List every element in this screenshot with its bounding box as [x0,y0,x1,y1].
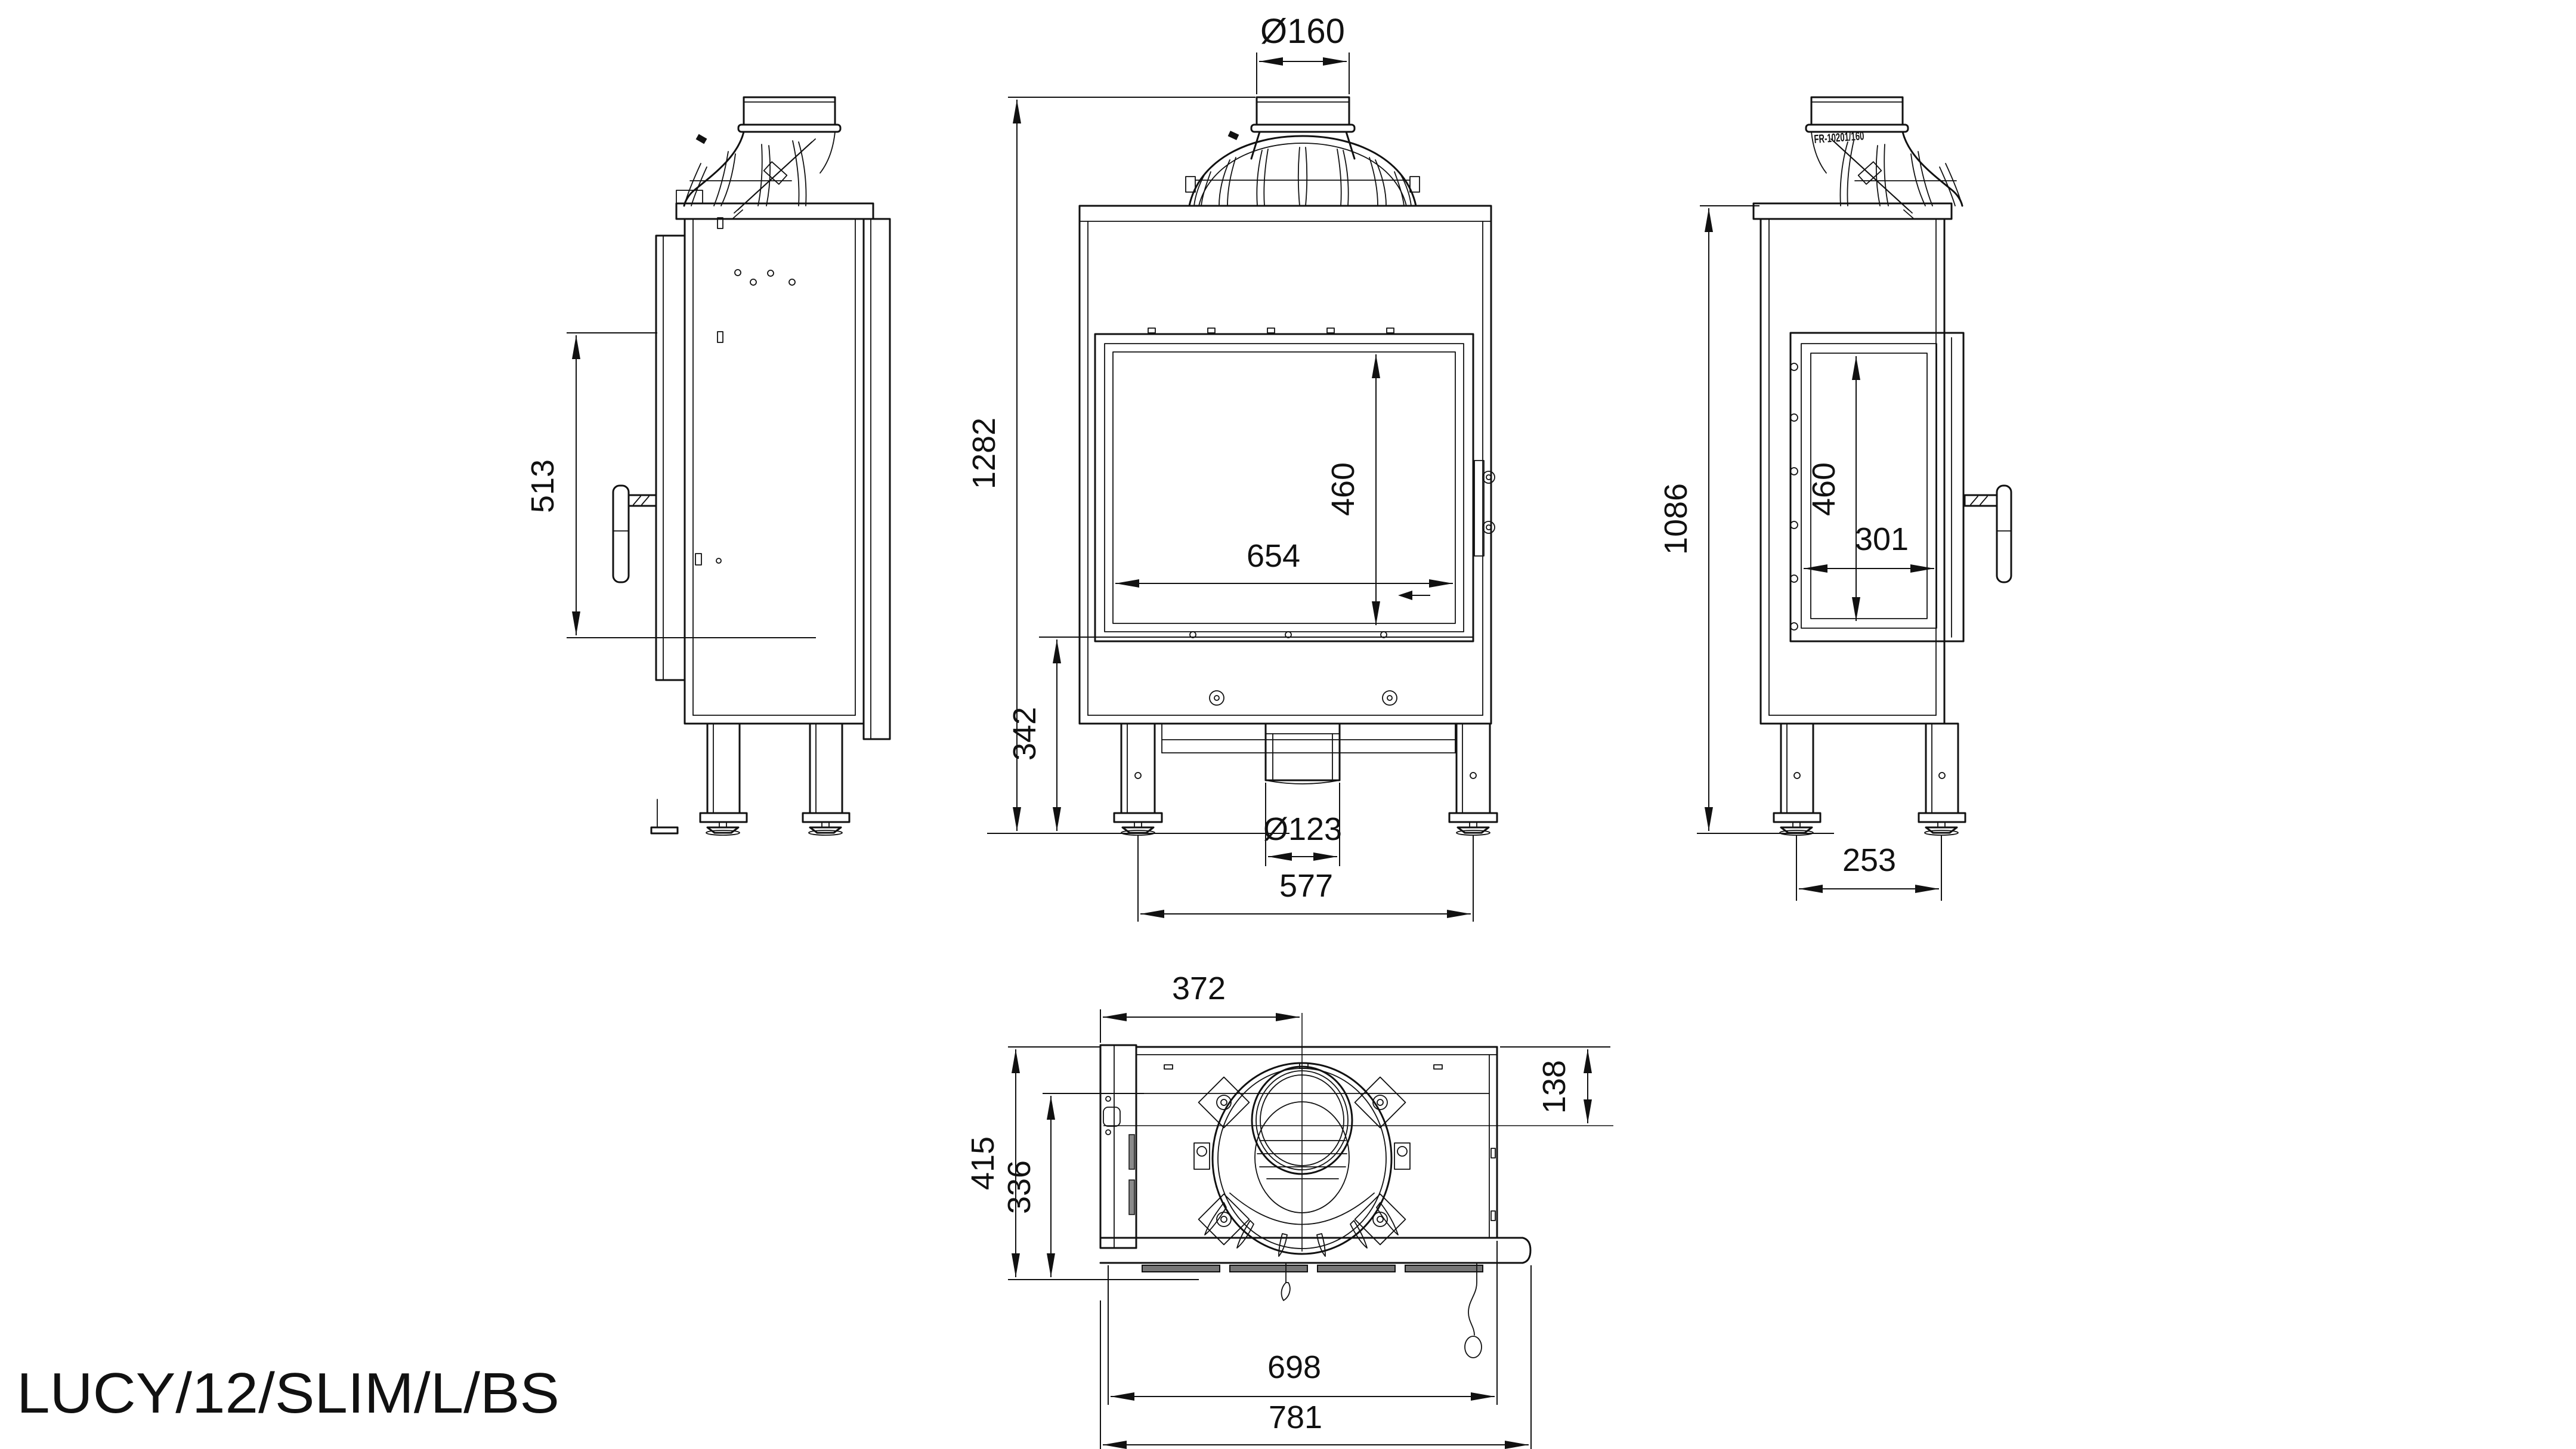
dim-depth-body: 336 [1001,1160,1037,1214]
dim-width-body: 698 [1267,1349,1321,1385]
front-view: Ø160 1282 342 460 654 Ø123 577 [966,12,1497,922]
dim-flue-offset-left: 372 [1172,971,1226,1006]
dim-side-glass-width: 301 [1855,521,1909,557]
flue-elbow-part-label: FR-10201/160 [1814,129,1864,146]
technical-drawing-sheet: 513 [0,0,2576,1449]
side-glass-view: FR-10201/160 [1658,97,2011,901]
dim-width-total: 781 [1269,1399,1322,1435]
model-title: LUCY/12/SLIM/L/BS [17,1361,559,1425]
dim-side-glass-height: 460 [1806,462,1842,516]
dim-feet-spacing-front: 577 [1279,868,1333,904]
side-view: 513 [525,97,890,835]
dim-flue-diameter: Ø160 [1260,12,1345,51]
dim-total-height: 1282 [966,418,1002,489]
dim-front-glass-height: 460 [1325,462,1361,516]
dim-feet-spacing-side: 253 [1842,842,1896,878]
dim-plinth-height: 342 [1007,707,1043,761]
dim-front-glass-width: 654 [1247,538,1300,574]
dim-depth-total: 415 [965,1136,1001,1190]
top-view: 372 138 415 336 698 781 [965,971,1613,1449]
dim-inlet-diameter: Ø123 [1263,811,1342,847]
dim-body-height: 1086 [1658,483,1694,555]
dim-flue-offset-back: 138 [1536,1060,1572,1114]
dim-side-door-height: 513 [525,459,561,513]
